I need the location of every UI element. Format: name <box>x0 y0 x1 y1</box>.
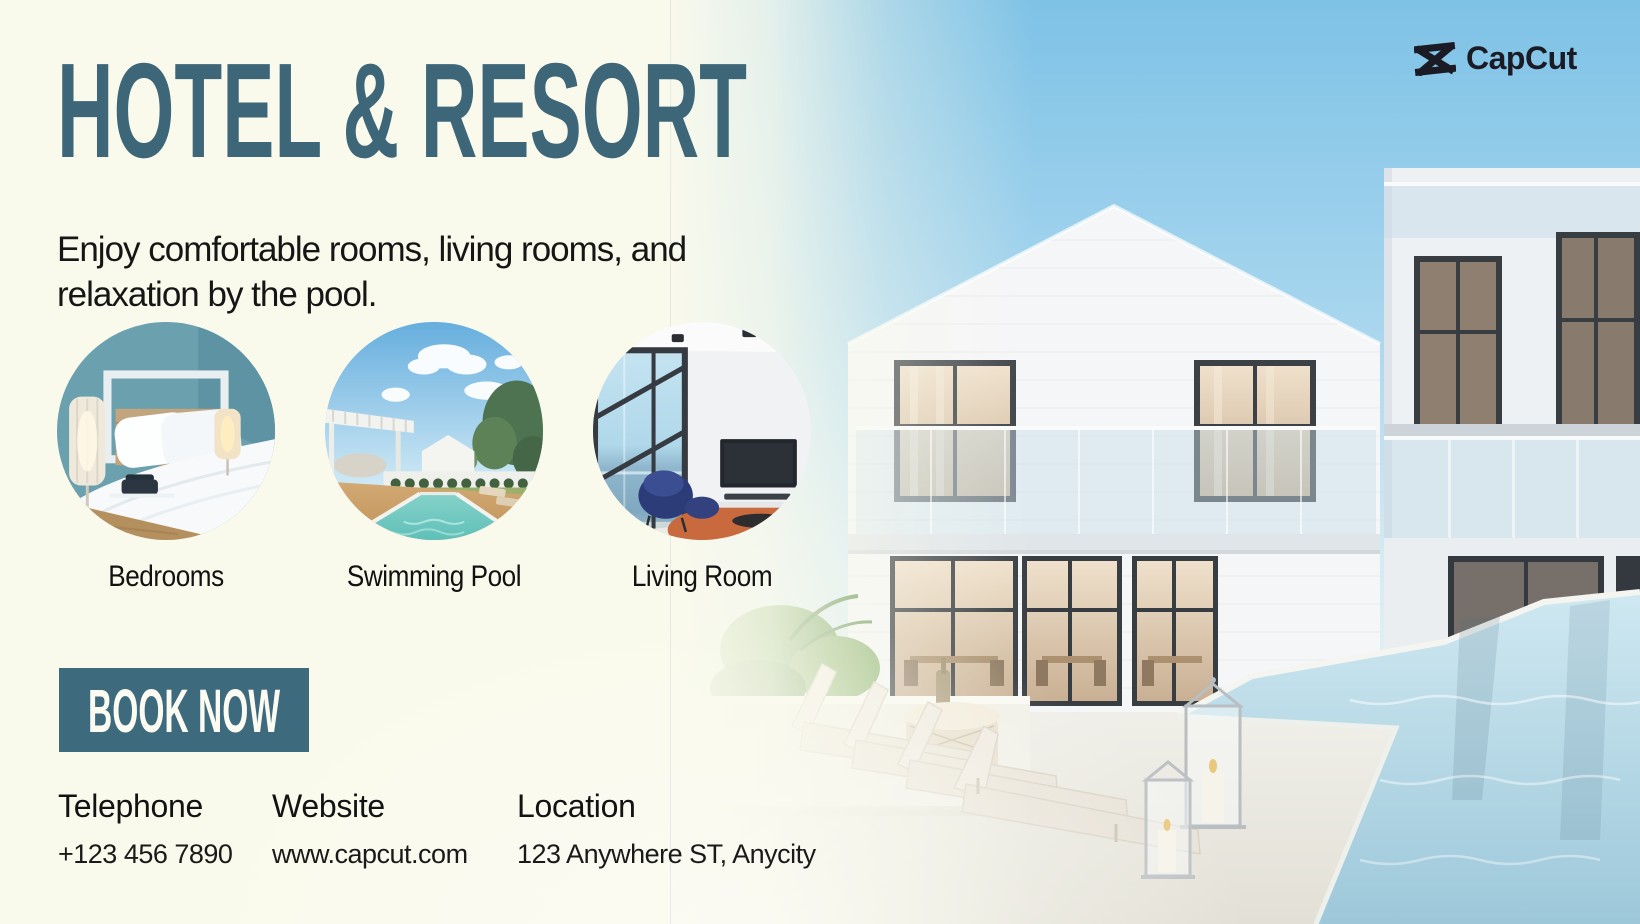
contact-location: Location 123 Anywhere ST, Anycity <box>517 788 816 870</box>
bedroom-photo <box>57 322 275 540</box>
book-now-button[interactable]: BOOK NOW <box>59 668 309 752</box>
flyer-title: HOTEL & RESORT <box>57 60 767 172</box>
telephone-heading: Telephone <box>58 788 232 825</box>
feature-label-swimming-pool: Swimming Pool <box>339 560 529 594</box>
capcut-logo-text: CapCut <box>1466 40 1577 77</box>
feature-label-bedrooms: Bedrooms <box>71 560 261 594</box>
website-value: www.capcut.com <box>272 839 468 870</box>
feature-bedrooms: Bedrooms <box>57 322 275 594</box>
location-heading: Location <box>517 788 816 825</box>
living-room-illustration <box>593 322 811 540</box>
flyer-canvas: CapCut HOTEL & RESORT Enjoy comfortable … <box>0 0 1640 924</box>
feature-label-living-room: Living Room <box>607 560 797 594</box>
living-room-photo <box>593 322 811 540</box>
contact-telephone: Telephone +123 456 7890 <box>58 788 232 870</box>
flyer-title-text: HOTEL & RESORT <box>57 60 747 172</box>
feature-swimming-pool: Swimming Pool <box>325 322 543 594</box>
feature-living-room: Living Room <box>593 322 811 594</box>
book-now-label: BOOK NOW <box>88 677 280 745</box>
bedroom-illustration <box>57 322 275 540</box>
book-now-label-svg: BOOK NOW <box>59 668 309 752</box>
contact-website: Website www.capcut.com <box>272 788 468 870</box>
telephone-value: +123 456 7890 <box>58 839 232 870</box>
capcut-logo: CapCut <box>1414 40 1577 77</box>
location-value: 123 Anywhere ST, Anycity <box>517 839 816 870</box>
capcut-logo-icon <box>1414 42 1456 76</box>
swimming-pool-illustration <box>325 322 543 540</box>
flyer-subtitle: Enjoy comfortable rooms, living rooms, a… <box>57 227 757 317</box>
website-heading: Website <box>272 788 468 825</box>
swimming-pool-photo <box>325 322 543 540</box>
